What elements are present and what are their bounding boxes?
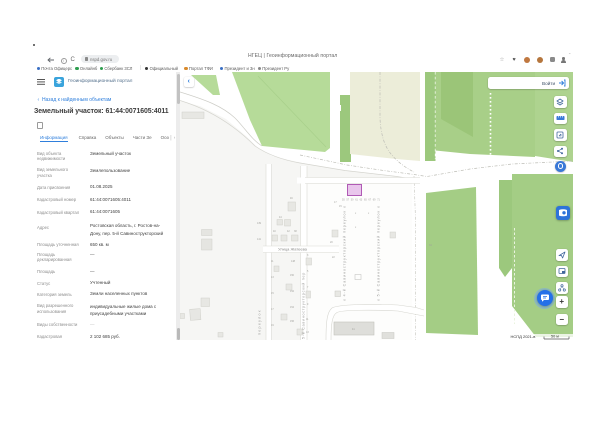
- svg-text:139: 139: [257, 222, 262, 225]
- svg-text:148: 148: [291, 260, 296, 263]
- svg-text:152: 152: [290, 290, 295, 293]
- svg-text:Улица Жатеева: Улица Жатеева: [278, 247, 308, 252]
- svg-text:154: 154: [290, 306, 295, 309]
- svg-text:5-й Савинострукторский пер: 5-й Савинострукторский пер: [302, 272, 306, 339]
- svg-text:156: 156: [290, 320, 295, 323]
- svg-text:х 4-й Савинострукторский переу: х 4-й Савинострукторский переулок х: [343, 205, 347, 301]
- svg-text:х 5-й Савинострукторский переу: х 5-й Савинострукторский переулок х: [377, 205, 381, 301]
- svg-text:50 м: 50 м: [551, 335, 559, 339]
- svg-text:150: 150: [290, 274, 295, 277]
- svg-text:141: 141: [257, 238, 262, 241]
- svg-text:переулок: переулок: [258, 309, 262, 335]
